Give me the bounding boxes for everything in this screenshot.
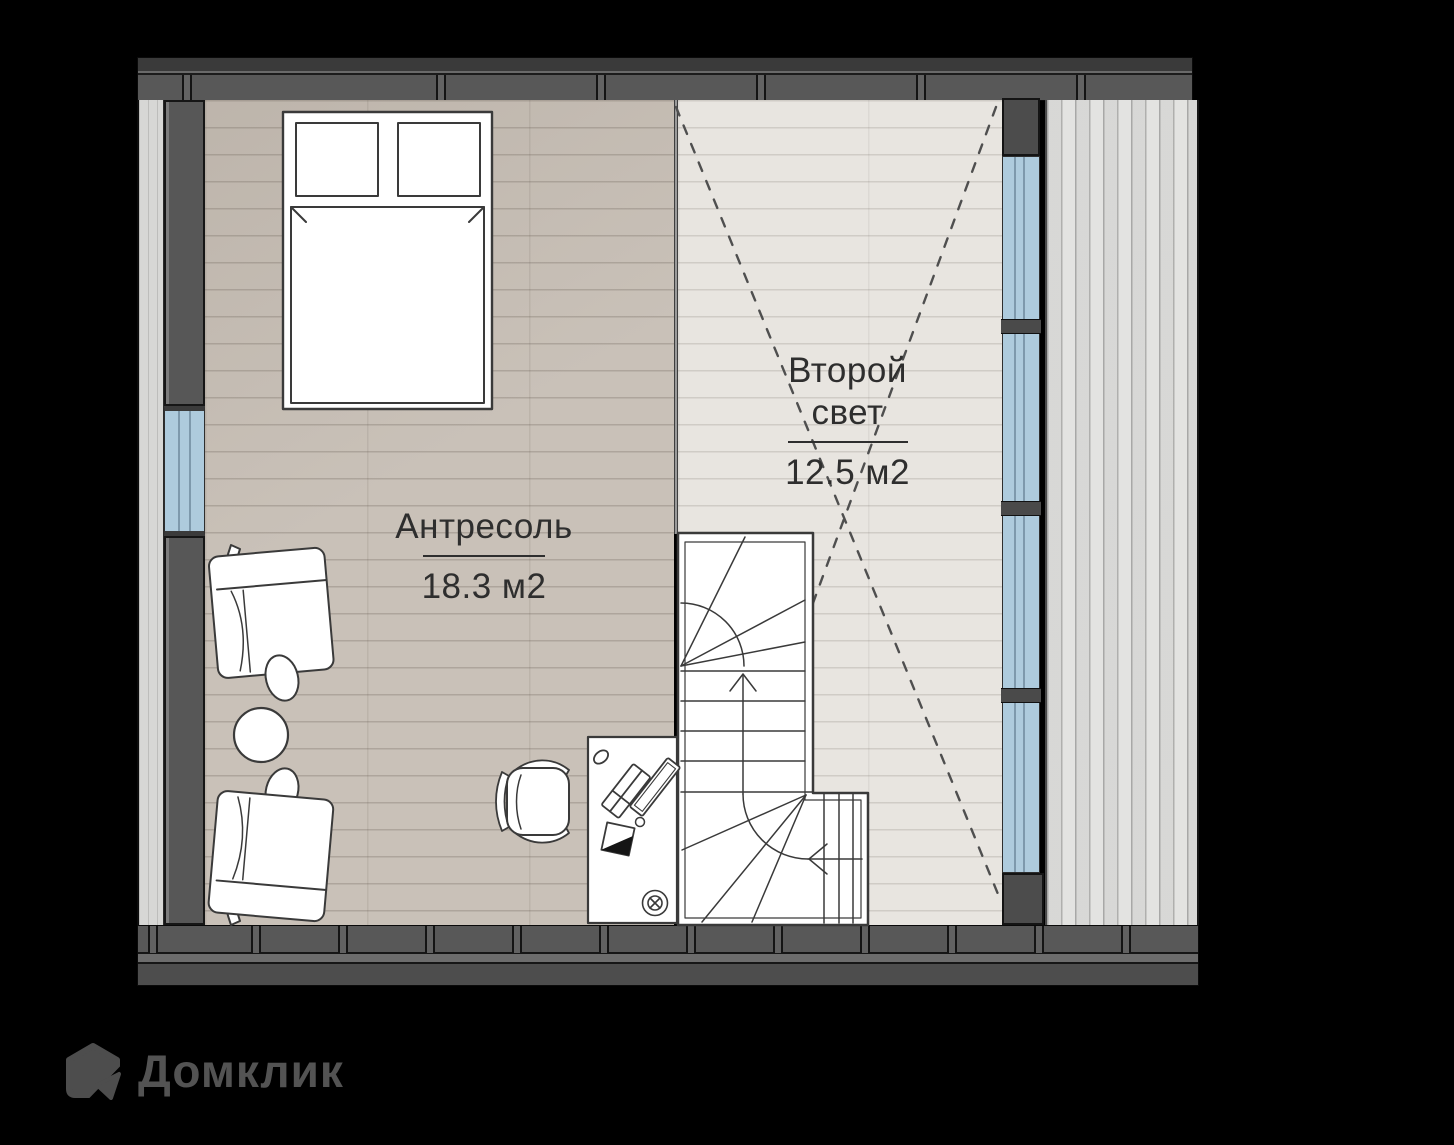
label-divider-line bbox=[788, 441, 908, 443]
side-table bbox=[234, 708, 288, 762]
room-name: Антресоль bbox=[382, 506, 586, 548]
room-area: 12.5 м2 bbox=[770, 452, 925, 494]
room-label-second-light: Второй свет 12.5 м2 bbox=[770, 350, 925, 494]
domclick-house-icon bbox=[64, 1042, 122, 1100]
office-chair bbox=[496, 760, 569, 842]
floor-plan-screenshot: Антресоль 18.3 м2 Второй свет 12.5 м2 До… bbox=[0, 0, 1454, 1145]
armchair-bottom bbox=[208, 790, 334, 925]
pillow bbox=[398, 123, 480, 196]
pillow bbox=[296, 123, 378, 196]
room-label-mezzanine: Антресоль 18.3 м2 bbox=[382, 506, 586, 608]
blanket bbox=[291, 207, 484, 403]
staircase bbox=[678, 533, 868, 925]
desk bbox=[588, 737, 680, 923]
domclick-logo: Домклик bbox=[64, 1042, 344, 1100]
room-area: 18.3 м2 bbox=[382, 566, 586, 608]
plan-drawing-layer bbox=[0, 0, 1454, 1145]
label-divider-line bbox=[423, 555, 545, 557]
logo-text: Домклик bbox=[138, 1044, 344, 1098]
bed bbox=[283, 112, 492, 409]
notebook bbox=[601, 822, 634, 855]
lounge-area bbox=[208, 545, 335, 925]
room-name: Второй свет bbox=[770, 350, 925, 434]
